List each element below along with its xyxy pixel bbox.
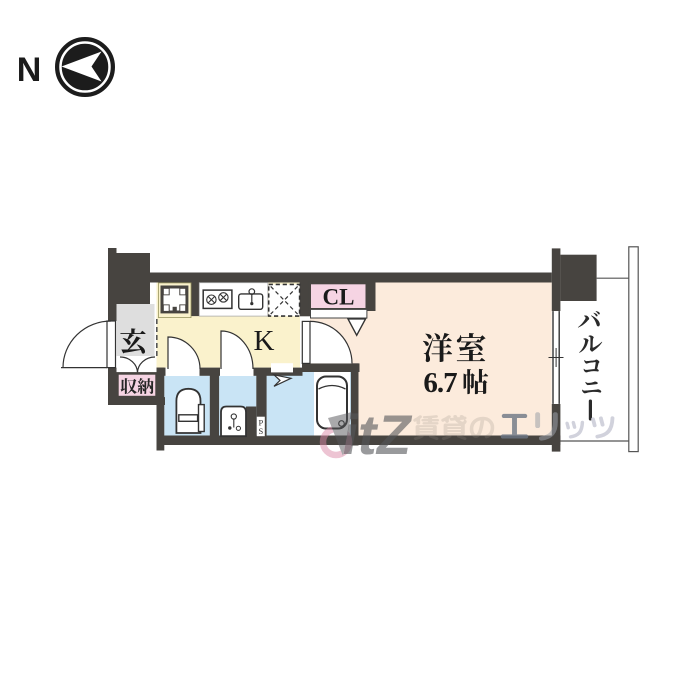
svg-text:S: S [259, 426, 264, 436]
svg-text:itZ: itZ [338, 403, 417, 466]
svg-text:6.7: 6.7 [423, 367, 457, 399]
svg-text:K: K [254, 325, 275, 357]
svg-text:N: N [17, 51, 42, 89]
svg-text:CL: CL [323, 285, 355, 310]
